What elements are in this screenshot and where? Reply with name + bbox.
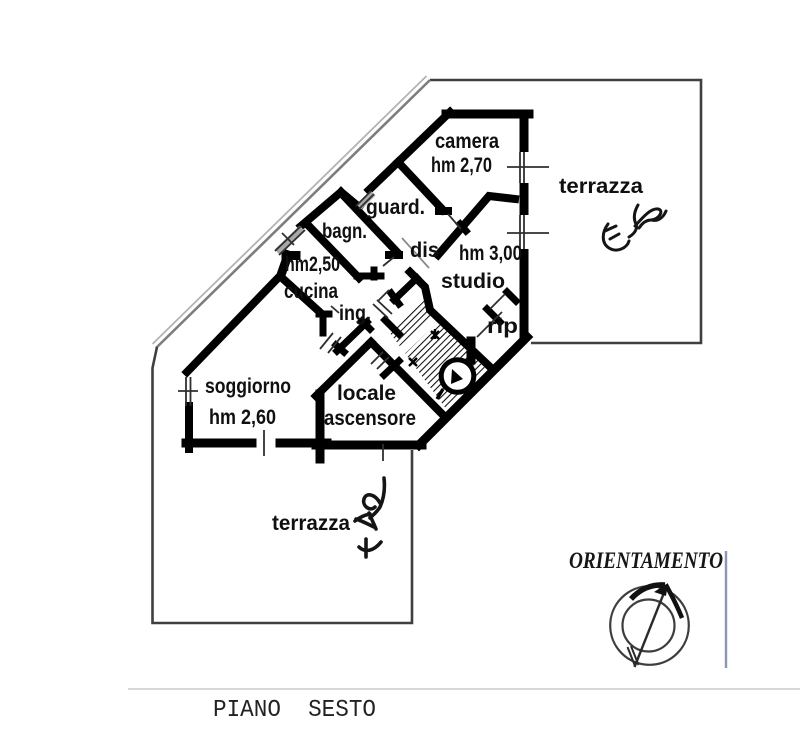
svg-text:bagn.: bagn.: [322, 220, 367, 243]
svg-text:hm2,50: hm2,50: [285, 253, 340, 276]
svg-text:ing.: ing.: [339, 302, 371, 325]
svg-text:soggiorno: soggiorno: [205, 375, 291, 398]
svg-text:hm 3,00: hm 3,00: [459, 242, 522, 265]
svg-text:rip: rip: [487, 315, 518, 338]
svg-text:guard.: guard.: [366, 196, 425, 219]
svg-text:hm 2,60: hm 2,60: [209, 406, 276, 429]
svg-text:dis: dis: [410, 239, 439, 262]
svg-text:terrazza: terrazza: [559, 175, 643, 198]
svg-text:hm 2,70: hm 2,70: [431, 154, 492, 177]
svg-text:studio: studio: [441, 270, 505, 293]
svg-text:PIANO SESTO: PIANO SESTO: [213, 697, 376, 724]
svg-text:locale: locale: [337, 382, 396, 405]
svg-text:ORIENTAMENTO: ORIENTAMENTO: [569, 548, 723, 573]
svg-text:cucina: cucina: [284, 280, 338, 303]
svg-text:terrazza: terrazza: [272, 512, 350, 535]
svg-text:ascensore: ascensore: [324, 407, 416, 430]
svg-text:camera: camera: [435, 130, 499, 153]
